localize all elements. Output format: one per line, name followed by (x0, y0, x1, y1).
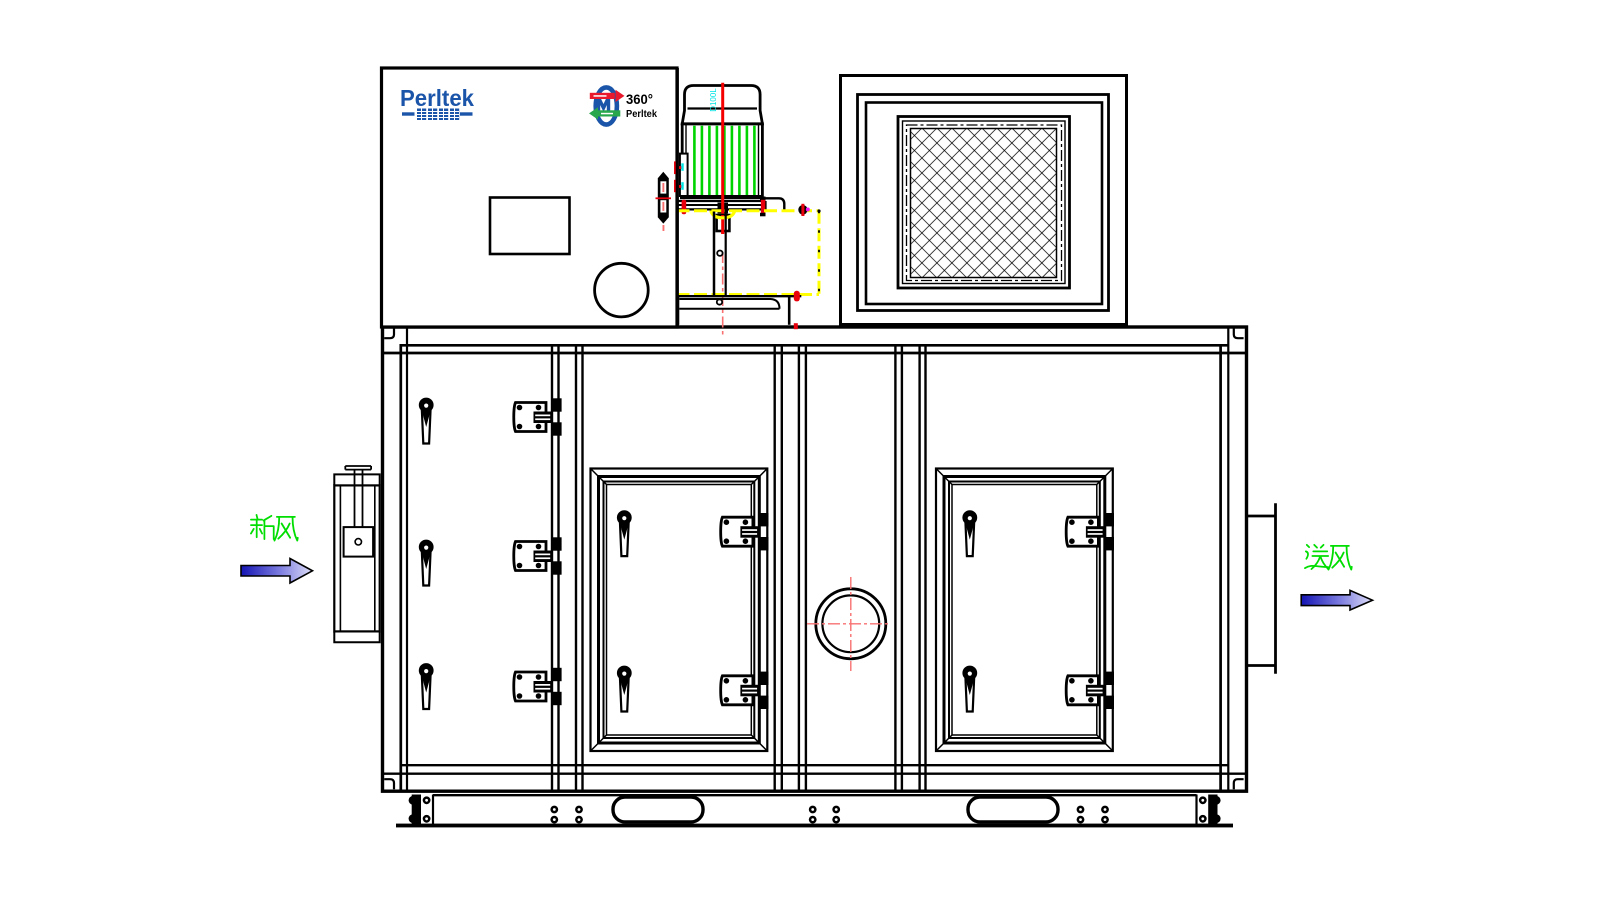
svg-text:Perltek: Perltek (400, 85, 474, 111)
svg-text:Perltek: Perltek (626, 108, 657, 120)
svg-text:360°: 360° (626, 91, 653, 107)
svg-text:D100L: D100L (709, 88, 718, 112)
